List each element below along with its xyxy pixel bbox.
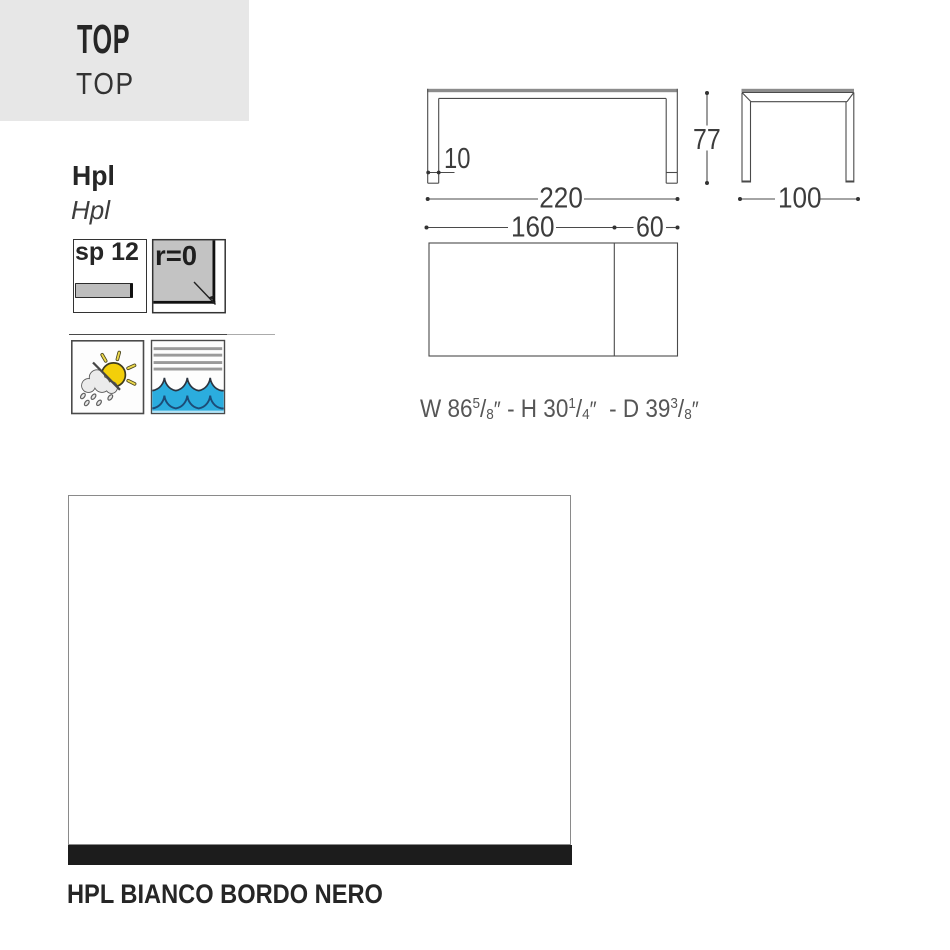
svg-text:77: 77 xyxy=(693,123,721,155)
svg-text:60: 60 xyxy=(636,211,664,243)
svg-text:10: 10 xyxy=(444,142,470,175)
svg-text:220: 220 xyxy=(539,181,583,214)
svg-text:160: 160 xyxy=(511,210,555,243)
svg-text:r=0: r=0 xyxy=(155,240,197,271)
svg-text:100: 100 xyxy=(778,181,822,214)
